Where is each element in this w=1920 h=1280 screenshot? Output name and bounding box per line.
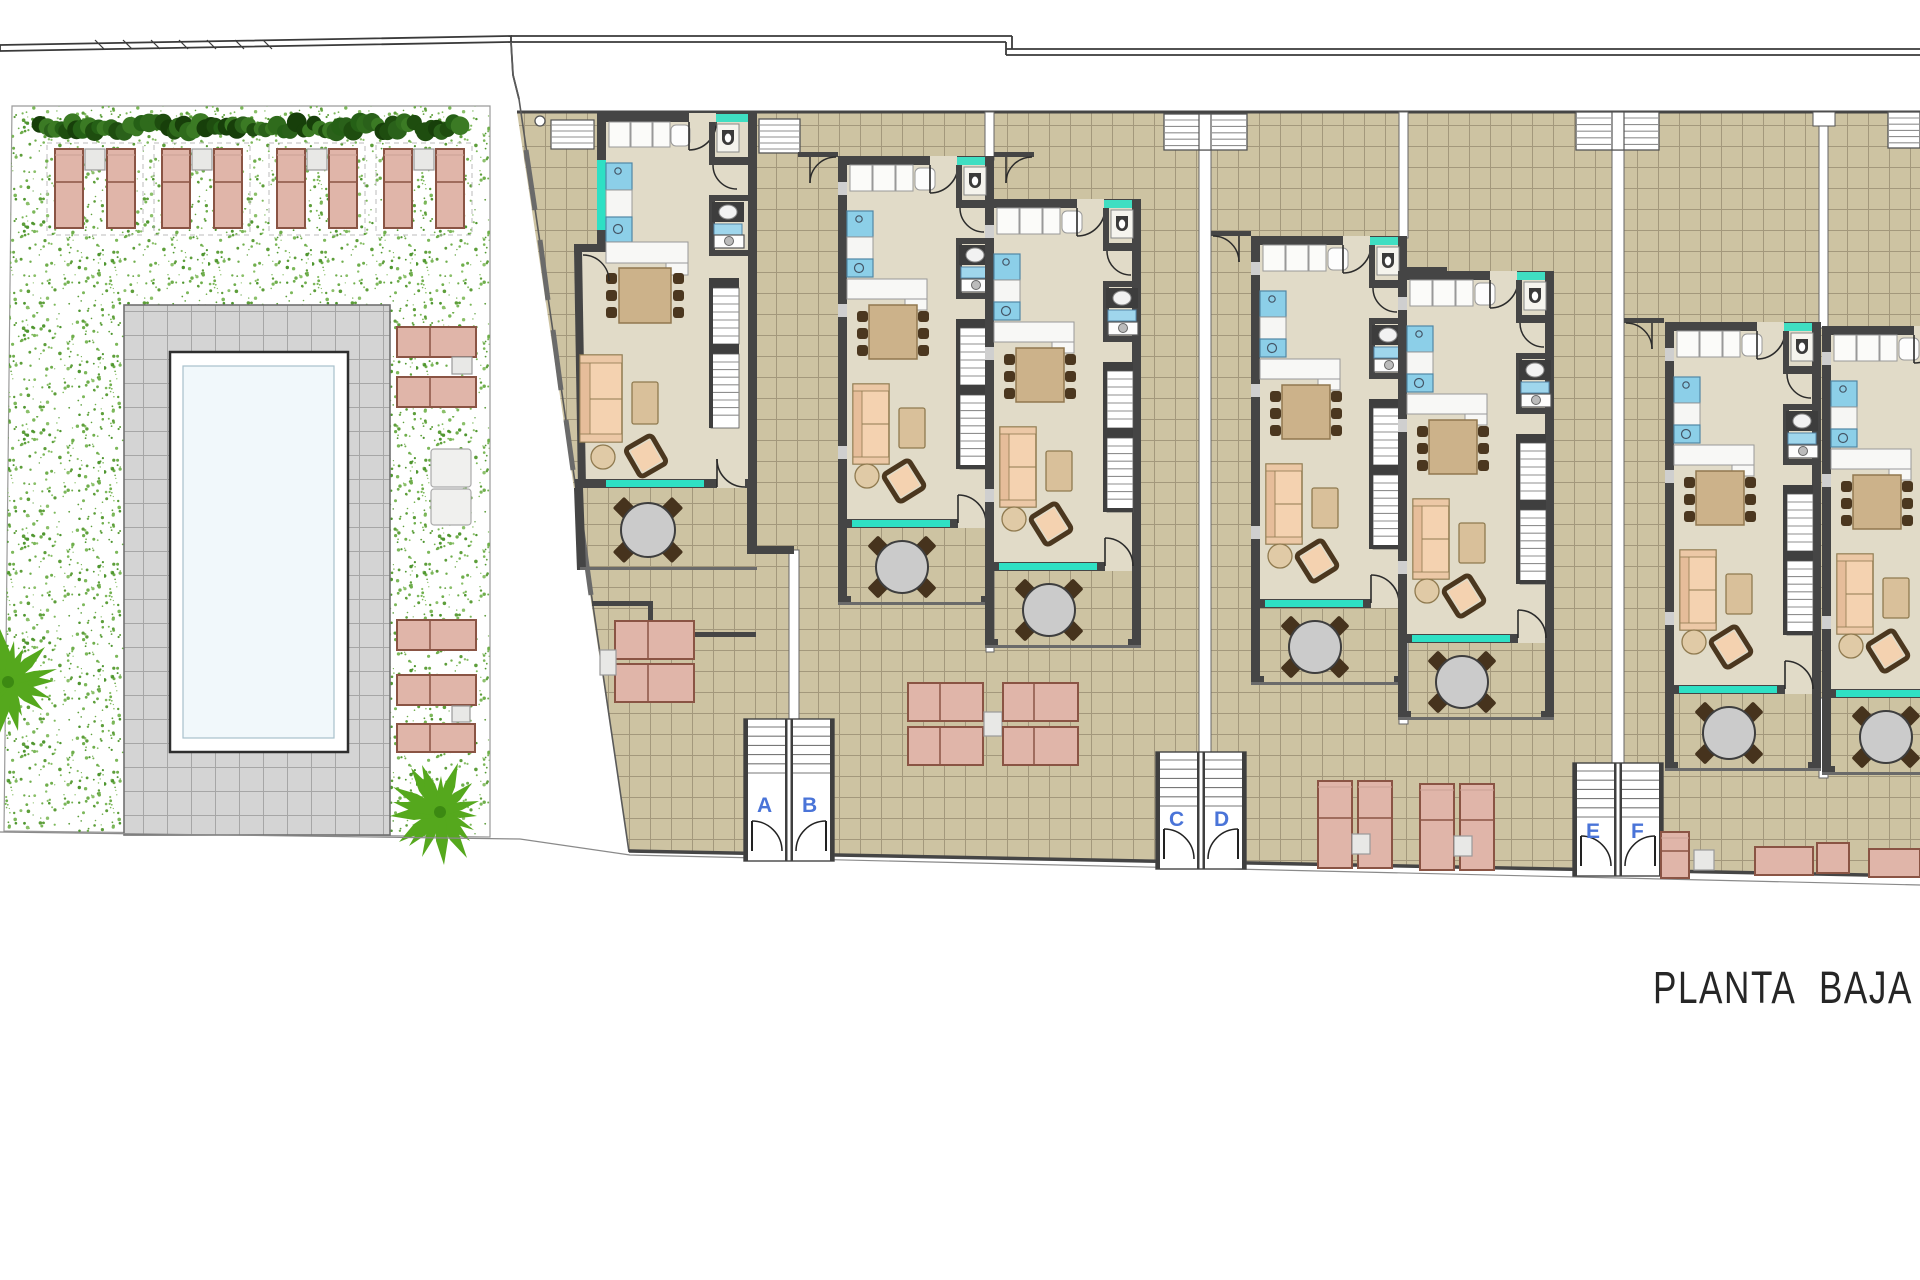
svg-text:A: A xyxy=(757,794,772,817)
svg-text:B: B xyxy=(802,794,817,817)
svg-text:E: E xyxy=(1586,820,1600,843)
svg-text:D: D xyxy=(1214,808,1229,831)
svg-text:PLANTA BAJA: PLANTA BAJA xyxy=(1653,962,1913,1013)
svg-text:C: C xyxy=(1169,808,1184,831)
svg-text:F: F xyxy=(1631,820,1644,843)
